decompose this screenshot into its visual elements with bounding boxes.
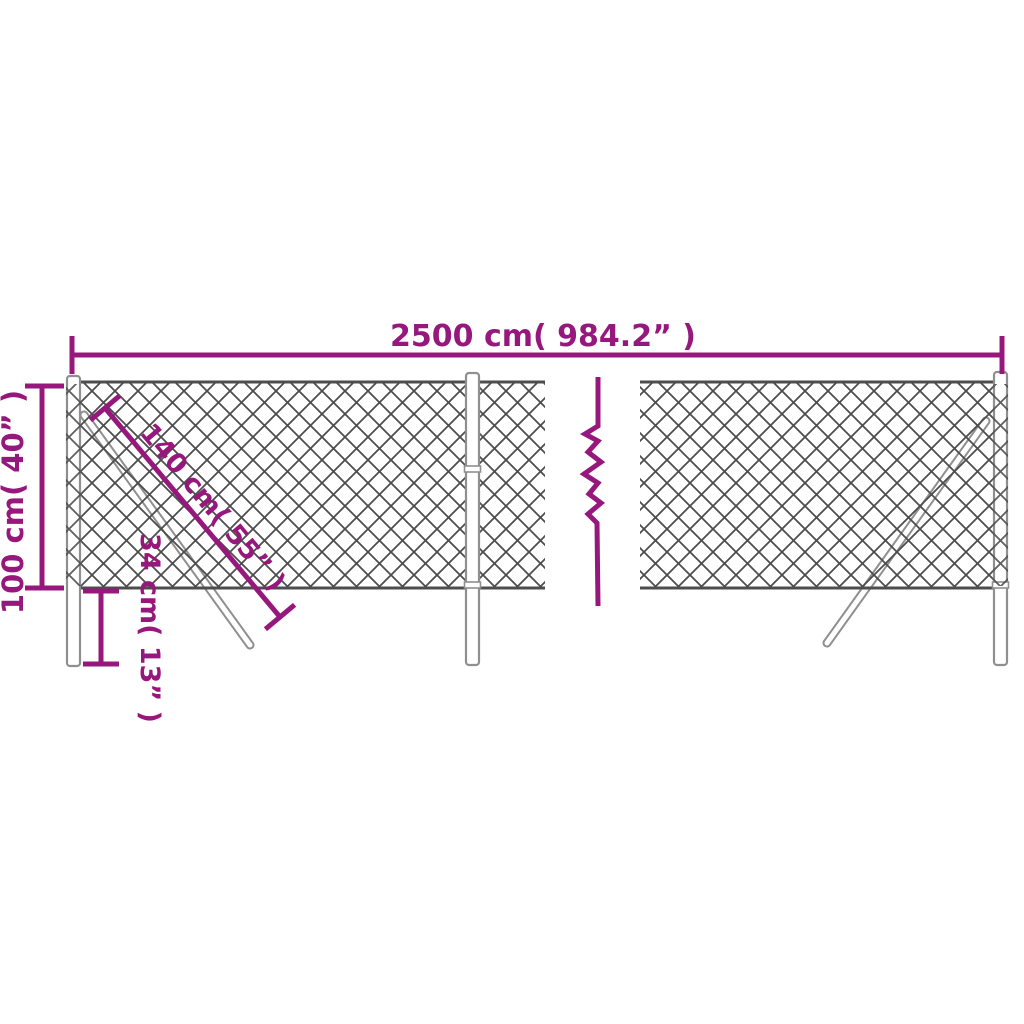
diagram-canvas: 2500 cm( 984.2” ) 100 cm( 40” ) 140 cm( … [0, 0, 1024, 1024]
right-edge-weave [993, 384, 1008, 586]
post-clamp [465, 582, 481, 588]
post-clamp [465, 466, 481, 472]
height-dimension: 100 cm( 40” ) [0, 386, 64, 614]
middle-post [466, 373, 479, 665]
left-edge-weave [66, 384, 81, 586]
height-dimension-label: 100 cm( 40” ) [0, 390, 30, 614]
width-dimension: 2500 cm( 984.2” ) [72, 319, 1002, 374]
post-depth-dimension-label: 34 cm( 13” ) [134, 533, 165, 723]
width-dimension-label: 2500 cm( 984.2” ) [390, 319, 696, 354]
fence-dimension-diagram: 2500 cm( 984.2” ) 100 cm( 40” ) 140 cm( … [0, 0, 1024, 1024]
fence-continuation-break-icon [584, 377, 601, 606]
right-mesh-panel [640, 382, 1002, 588]
